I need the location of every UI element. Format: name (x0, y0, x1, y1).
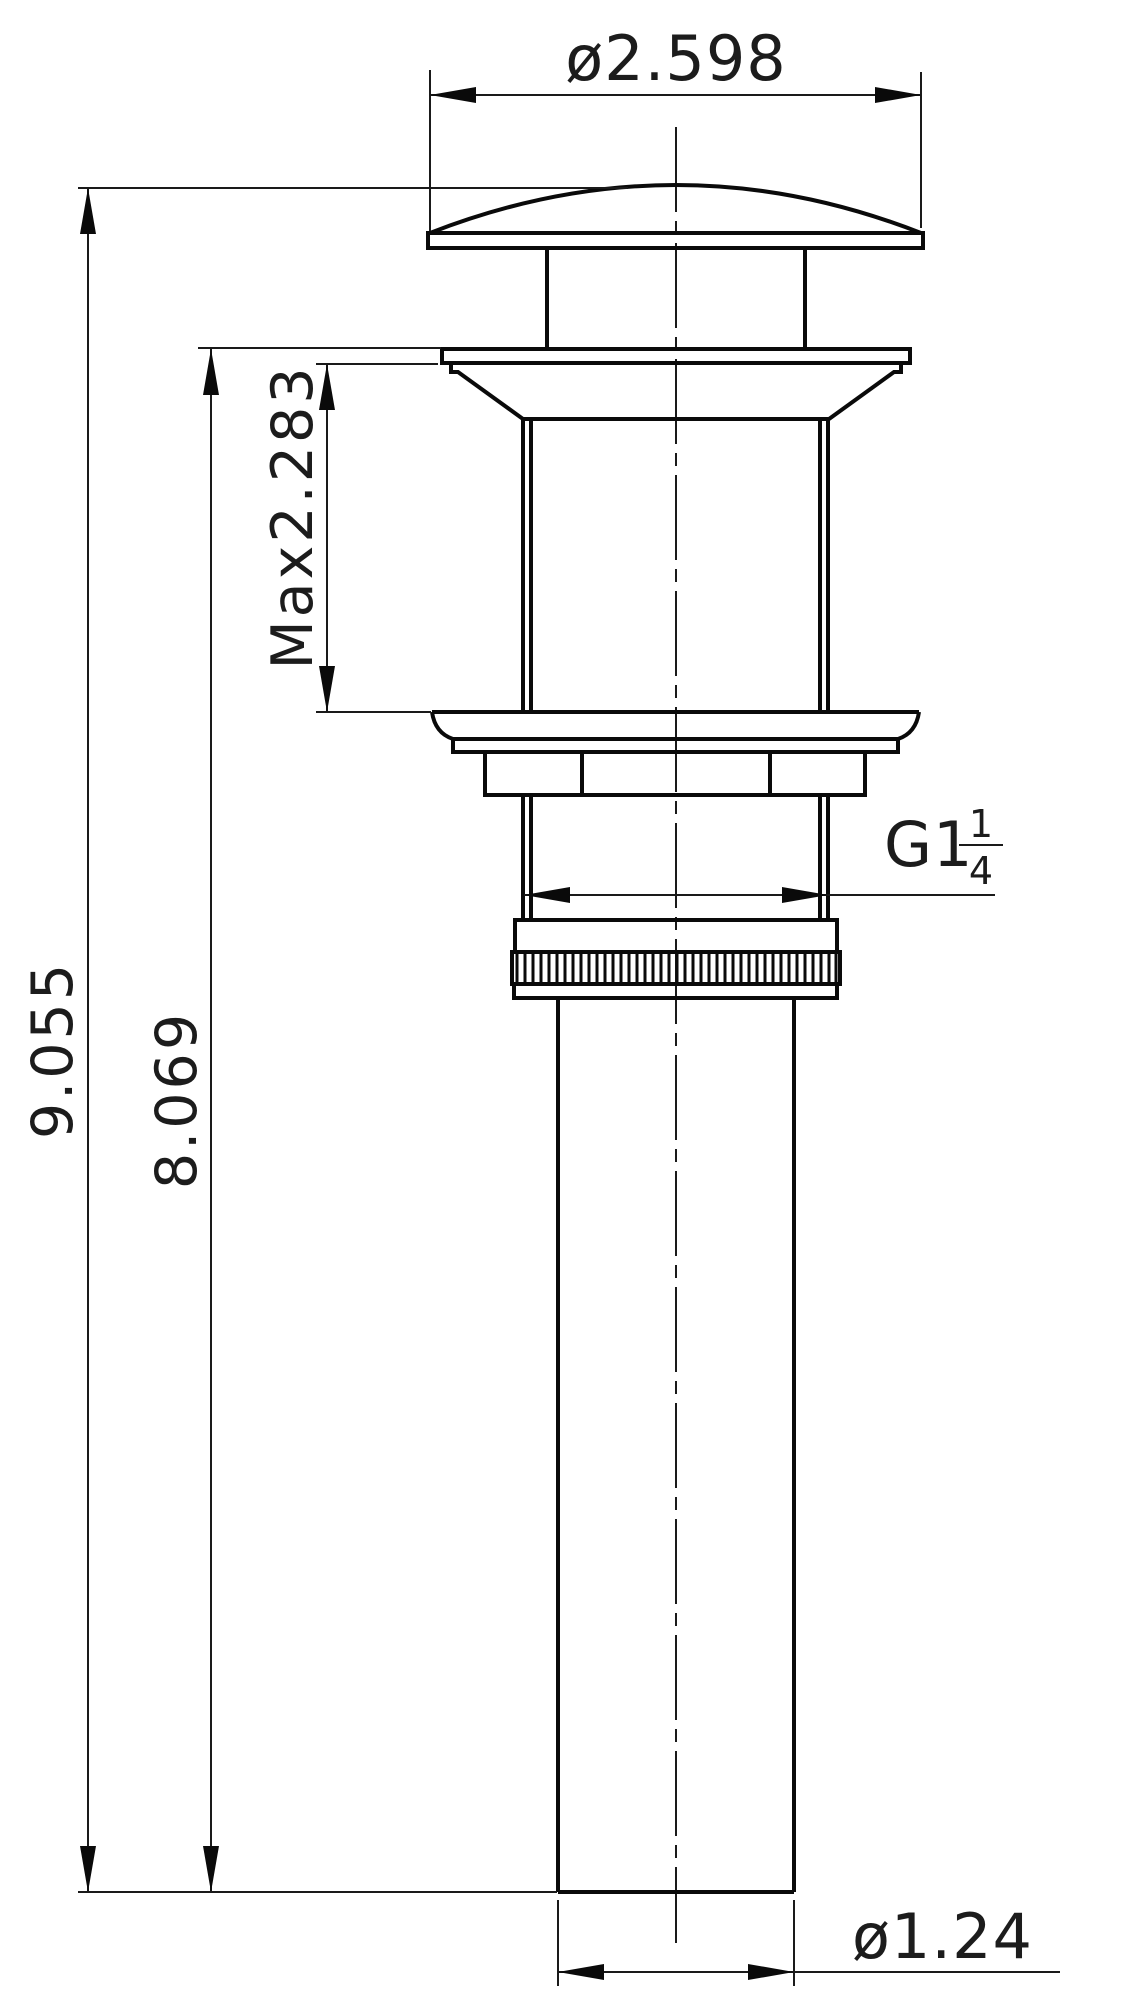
arrow-down-icon (319, 666, 335, 712)
arrow-left-icon (430, 87, 476, 103)
flange-step-right (829, 363, 901, 419)
dim-max-deck-thickness: Max2.283 (260, 364, 438, 712)
washer-right-curve (898, 712, 919, 739)
arrow-right-icon (875, 87, 921, 103)
arrow-down-icon (203, 1846, 219, 1892)
thread-fraction-denominator: 4 (969, 849, 993, 893)
arrow-right-icon (748, 1964, 794, 1980)
arrow-down-icon (80, 1846, 96, 1892)
thread-fraction-numerator: 1 (969, 802, 993, 846)
washer-left-curve (432, 712, 453, 739)
technical-drawing-page: ø2.598 9.055 8.069 Max2.283 G1 1 4 (0, 0, 1147, 2000)
drain-assembly-drawing: ø2.598 9.055 8.069 Max2.283 G1 1 4 (0, 0, 1147, 2000)
dim-install-height-label: 8.069 (144, 1011, 210, 1189)
dim-thread-size: G1 1 4 (524, 802, 1003, 903)
dim-overall-height-label: 9.055 (20, 961, 86, 1139)
dim-outlet-label: ø1.24 (852, 1900, 1033, 1973)
dim-max-deck-label: Max2.283 (260, 364, 326, 669)
flange-step-left (451, 363, 523, 419)
dim-outlet-diameter: ø1.24 (558, 1900, 1060, 1986)
knurl-hatch-lines (517, 952, 836, 984)
arrow-left-icon (558, 1964, 604, 1980)
arrow-up-icon (80, 188, 96, 234)
arrow-up-icon (203, 349, 219, 395)
dim-top-diameter-label: ø2.598 (565, 22, 786, 95)
